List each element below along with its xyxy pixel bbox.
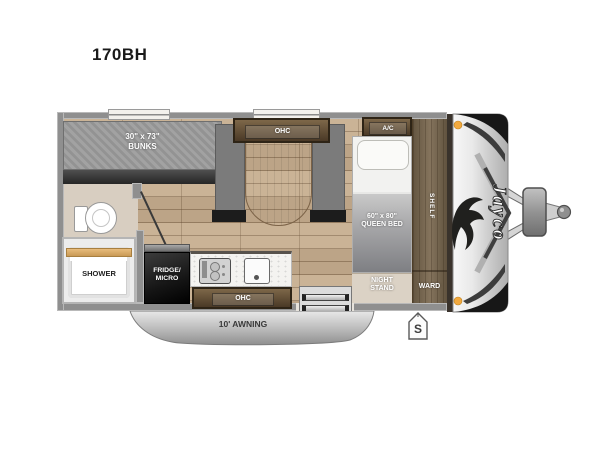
dinette-seat-base	[212, 210, 246, 222]
shelf-label: SHELF	[423, 182, 435, 230]
bunk-base	[63, 168, 225, 184]
cooktop-panel	[202, 261, 207, 278]
front-cap: Jayco	[447, 110, 582, 316]
kitchen-ohc: OHC	[192, 287, 292, 309]
toilet	[74, 202, 116, 234]
bunks-name: BUNKS	[63, 142, 222, 152]
night-stand: NIGHT STAND	[352, 273, 412, 303]
window-top-left	[108, 109, 170, 120]
fridge-top-cap	[144, 244, 190, 252]
floorplan-image: 170BH 30" x 73" BUNKS SHOWER FRIDGE/ MIC…	[0, 0, 600, 450]
toilet-bowl-inner	[92, 209, 110, 227]
s-badge: S	[408, 312, 428, 340]
awning: 10' AWNING	[128, 311, 376, 353]
sink	[244, 258, 270, 284]
s-badge-letter: S	[414, 322, 422, 336]
shower-curtain-rod	[66, 248, 132, 257]
cooktop	[199, 258, 231, 284]
dinette-seat-base	[310, 210, 346, 222]
ac-label: A/C	[382, 125, 393, 133]
faucet-icon	[254, 275, 259, 280]
dinette-table	[245, 142, 312, 226]
bunks-size: 30" x 73"	[63, 132, 222, 142]
fridge-label-2: MICRO	[145, 275, 189, 283]
bed-blanket	[353, 192, 411, 272]
queen-bed-label: 60" x 80" QUEEN BED	[353, 213, 411, 230]
fridge-micro: FRIDGE/ MICRO	[144, 252, 190, 304]
queen-bed: 60" x 80" QUEEN BED	[352, 136, 412, 273]
cap-wall-junction	[447, 114, 453, 312]
clearance-light-icon	[454, 121, 462, 129]
shower-curtain-hooks	[70, 257, 128, 261]
shelf-ward-seam	[412, 270, 447, 272]
model-title: 170BH	[92, 45, 147, 65]
shower: SHOWER	[62, 237, 136, 304]
kitchen-ohc-label: OHC	[235, 295, 251, 303]
hitch-coupler	[558, 206, 571, 219]
cooktop-knob	[222, 273, 225, 276]
step-tread	[302, 294, 349, 301]
burner-icon	[210, 271, 220, 281]
clearance-light-icon	[454, 297, 462, 305]
fridge-label-1: FRIDGE/	[145, 267, 189, 275]
queen-bed-name: QUEEN BED	[353, 221, 411, 229]
dinette-ohc: OHC	[233, 118, 330, 143]
ward-label: WARD	[412, 283, 447, 291]
ac-unit: A/C	[362, 117, 412, 137]
kitchen-counter	[190, 251, 292, 287]
dinette-ohc-label: OHC	[275, 128, 291, 136]
cooktop-knob	[222, 265, 225, 268]
awning-label: 10' AWNING	[219, 319, 268, 329]
night-stand-label-2: STAND	[352, 285, 412, 293]
propane-cover	[523, 188, 546, 236]
bed-pillow	[357, 140, 409, 170]
bath-kitchen-wall	[136, 230, 144, 303]
hitch-coupler-highlight	[560, 208, 564, 212]
bunks-label: 30" x 73" BUNKS	[63, 132, 222, 151]
shower-label: SHOWER	[66, 269, 132, 278]
jayco-logo: Jayco	[488, 183, 510, 242]
